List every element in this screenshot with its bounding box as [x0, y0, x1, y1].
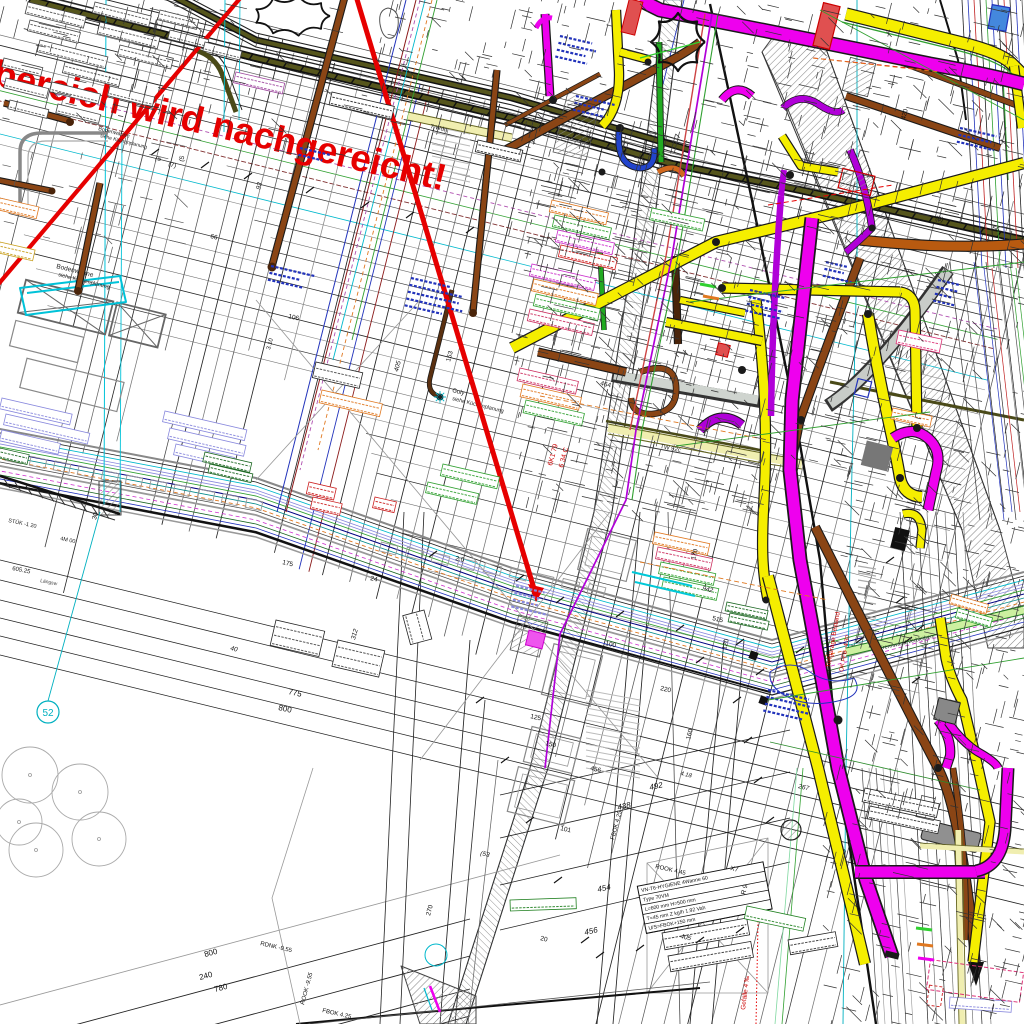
svg-text:52: 52: [42, 708, 54, 719]
